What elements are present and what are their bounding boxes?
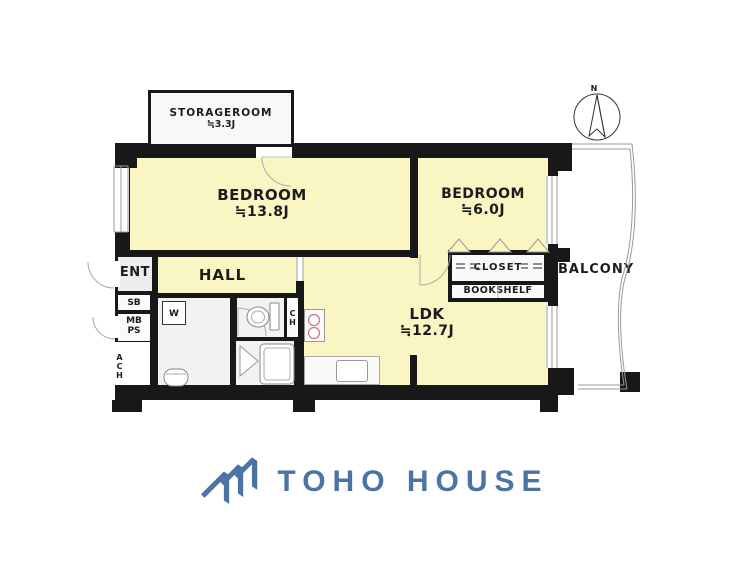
shoe-box-label: SB <box>118 298 150 308</box>
wall-stub <box>410 250 418 258</box>
toho-house-logo-icon <box>201 456 259 508</box>
pillar-mid-right <box>558 248 570 262</box>
room-storageroom: STORAGEROOM ≒3.3J <box>148 90 294 147</box>
kitchen-sink <box>336 360 368 382</box>
bump-bottom-right <box>540 400 558 412</box>
balcony-label: BALCONY <box>558 263 634 278</box>
compass: N <box>574 84 620 140</box>
company-logo: TOHO HOUSE <box>0 456 750 508</box>
bump-bottom-left <box>112 400 142 412</box>
meter-box-label: MB PS <box>118 317 150 337</box>
ldk-size: ≒12.7J <box>367 323 487 339</box>
bedroom-main-labels: BEDROOM ≒13.8J <box>190 187 334 220</box>
bookshelf-label: BOOKSHELF <box>452 286 544 297</box>
ch-label: CH <box>288 303 296 333</box>
bedroom-second-size: ≒6.0J <box>420 202 546 218</box>
pillar-top-left <box>115 158 137 168</box>
bedroom-main-label: BEDROOM <box>190 187 334 204</box>
stove <box>304 309 325 342</box>
balcony-corner-block <box>620 372 640 392</box>
washer-label: W <box>162 309 186 319</box>
storageroom-size: ≒3.3J <box>207 119 235 130</box>
exterior-notch <box>98 342 150 385</box>
bedroom-second-label: BEDROOM <box>420 186 546 202</box>
floorplan-page: STORAGEROOM ≒3.3J BEDROOM ≒13.8J BEDROOM… <box>0 0 750 563</box>
ach-label: ACH <box>115 346 123 386</box>
hall-label: HALL <box>180 267 265 284</box>
closet-label: CLOSET <box>452 262 544 274</box>
bedroom-second-window <box>546 176 558 244</box>
room-toilet <box>237 298 284 337</box>
ldk-label: LDK <box>367 306 487 323</box>
ldk-labels: LDK ≒12.7J <box>367 306 487 339</box>
bedroom-main-size: ≒13.8J <box>190 204 334 220</box>
room-bath <box>236 341 294 385</box>
hall-ldk-door-gap <box>296 257 304 281</box>
pillar-bottom-right <box>558 368 574 395</box>
compass-north-label: N <box>591 84 598 93</box>
ldk-wall-stub <box>410 355 417 385</box>
pillar-top-right <box>558 143 572 171</box>
storageroom-label: STORAGEROOM <box>169 107 272 119</box>
entrance-label: ENT <box>118 266 152 281</box>
meter-box-line2: PS <box>118 327 150 337</box>
bedroom-main-window <box>113 166 129 232</box>
bump-bottom-middle <box>293 400 315 412</box>
company-logo-text: TOHO HOUSE <box>277 465 548 499</box>
bedroom-second-labels: BEDROOM ≒6.0J <box>420 186 546 218</box>
ldk-window <box>546 306 558 368</box>
